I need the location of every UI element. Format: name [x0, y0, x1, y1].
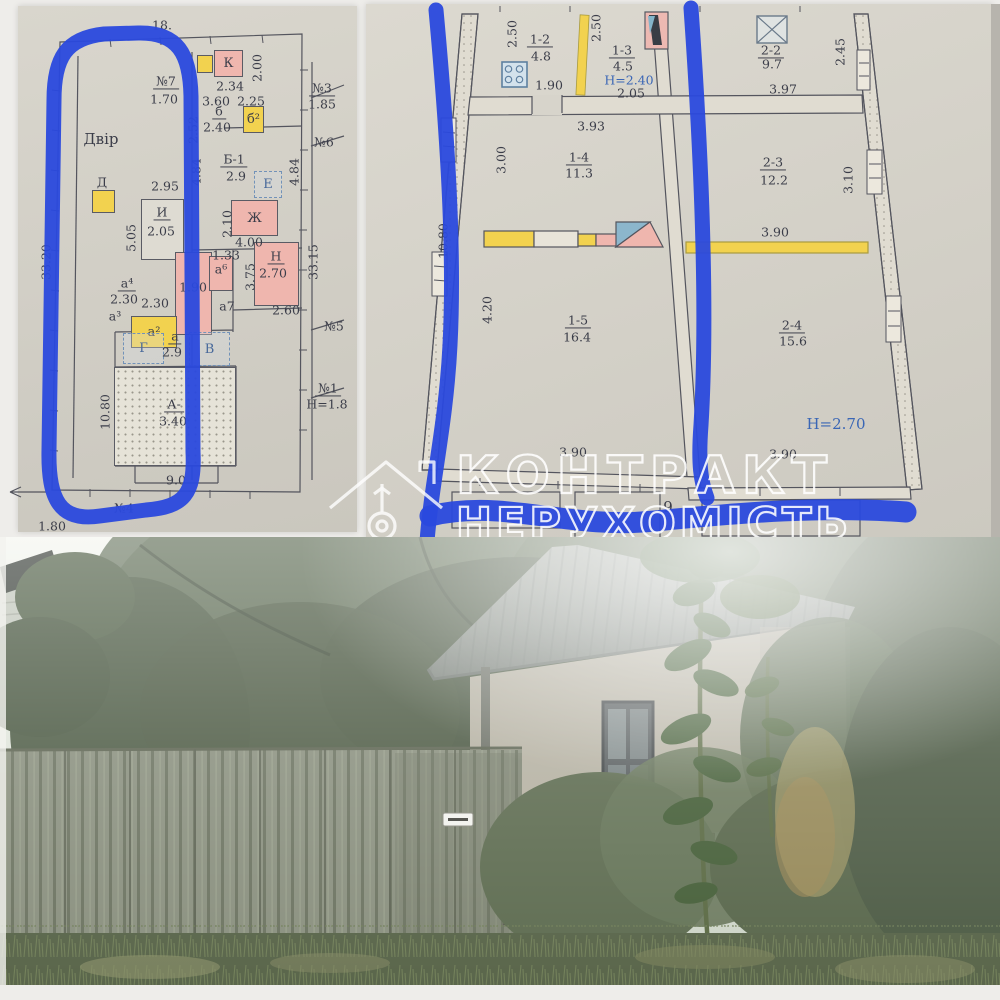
marker-stroke-bottom [430, 510, 906, 523]
photo-left-edge [0, 537, 6, 985]
marker-stroke-1 [427, 10, 452, 542]
marker-stroke-2 [691, 8, 707, 498]
blue-marker-annotations [0, 0, 1000, 545]
photo-scene [0, 537, 1000, 985]
marker-loop-left-plan [49, 33, 193, 517]
real-estate-collage: Кб²ЕЖа²ГВ 18.№71.70ДвірД2.95И2.055.0533.… [0, 0, 1000, 1000]
exterior-photo [0, 537, 1000, 985]
